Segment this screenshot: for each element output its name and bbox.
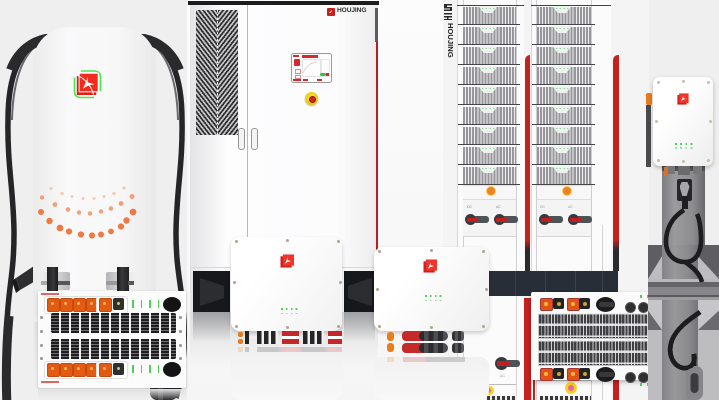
svg-text:HOUJING: HOUJING	[446, 23, 454, 58]
